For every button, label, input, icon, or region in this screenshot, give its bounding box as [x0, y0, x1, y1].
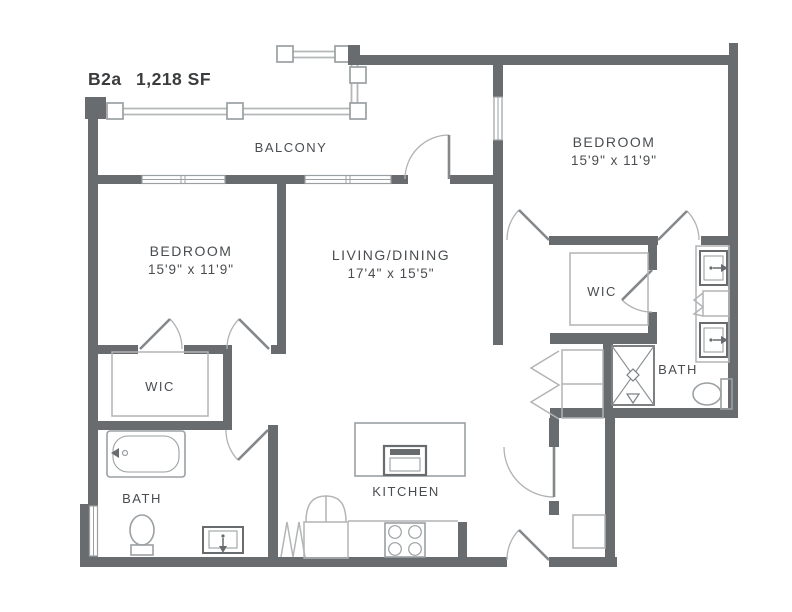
range-stove — [385, 523, 425, 557]
window-bedroom-right — [494, 97, 502, 140]
balcony-door — [405, 135, 449, 179]
kitchen-counter — [348, 521, 458, 557]
bedroom-right-dims: 15'9" x 11'9" — [571, 153, 657, 168]
sink-left — [203, 527, 243, 553]
living-dining-label: LIVING/DINING — [332, 247, 450, 263]
bedroom-right-door — [507, 210, 549, 240]
balcony-label: BALCONY — [255, 140, 328, 155]
windows — [90, 97, 503, 556]
kitchen-island — [355, 423, 465, 476]
wic-right-label: WIC — [587, 284, 617, 299]
window-bath-left — [90, 506, 98, 556]
bath-right-door — [658, 211, 699, 240]
bedroom-left-wic-door — [140, 319, 182, 349]
bath-left-door — [226, 430, 268, 460]
wic-left-label: WIC — [145, 379, 175, 394]
refrigerator — [304, 496, 348, 558]
pantry-bifold-doors — [281, 522, 305, 557]
fixtures — [107, 246, 732, 558]
floor-plan-svg: B2a 1,218 SF BALCONY BEDROOM 15'9" x 11'… — [0, 0, 792, 612]
bath-right-label: BATH — [658, 362, 698, 377]
kitchen-label: KITCHEN — [372, 484, 440, 499]
foyer-closet-door — [504, 447, 554, 497]
bedroom-right-label: BEDROOM — [573, 134, 656, 150]
toilet-right — [693, 379, 732, 409]
bedroom-left-entry-door — [227, 319, 269, 349]
vanity-cabinet — [703, 291, 729, 316]
tub-faucet-icon — [111, 448, 119, 458]
washer-dryer-stack — [562, 350, 603, 418]
double-vanity — [694, 246, 729, 362]
foyer-closet-shelf — [573, 515, 605, 548]
window-bedroom-left — [142, 176, 225, 184]
island-sink — [390, 449, 420, 455]
plan-code: B2a — [88, 69, 122, 89]
living-dining-dims: 17'4" x 15'5" — [347, 266, 434, 281]
plan-area: 1,218 SF — [136, 69, 211, 89]
shower — [612, 346, 654, 405]
bath-left-label: BATH — [122, 491, 162, 506]
toilet-left — [130, 515, 154, 555]
entry-door — [507, 530, 549, 560]
bedroom-left-label: BEDROOM — [150, 243, 233, 259]
bedroom-left-dims: 15'9" x 11'9" — [148, 262, 234, 277]
floor-plan: B2a 1,218 SF BALCONY BEDROOM 15'9" x 11'… — [0, 0, 792, 612]
window-living — [305, 176, 391, 184]
bathtub — [107, 431, 185, 477]
